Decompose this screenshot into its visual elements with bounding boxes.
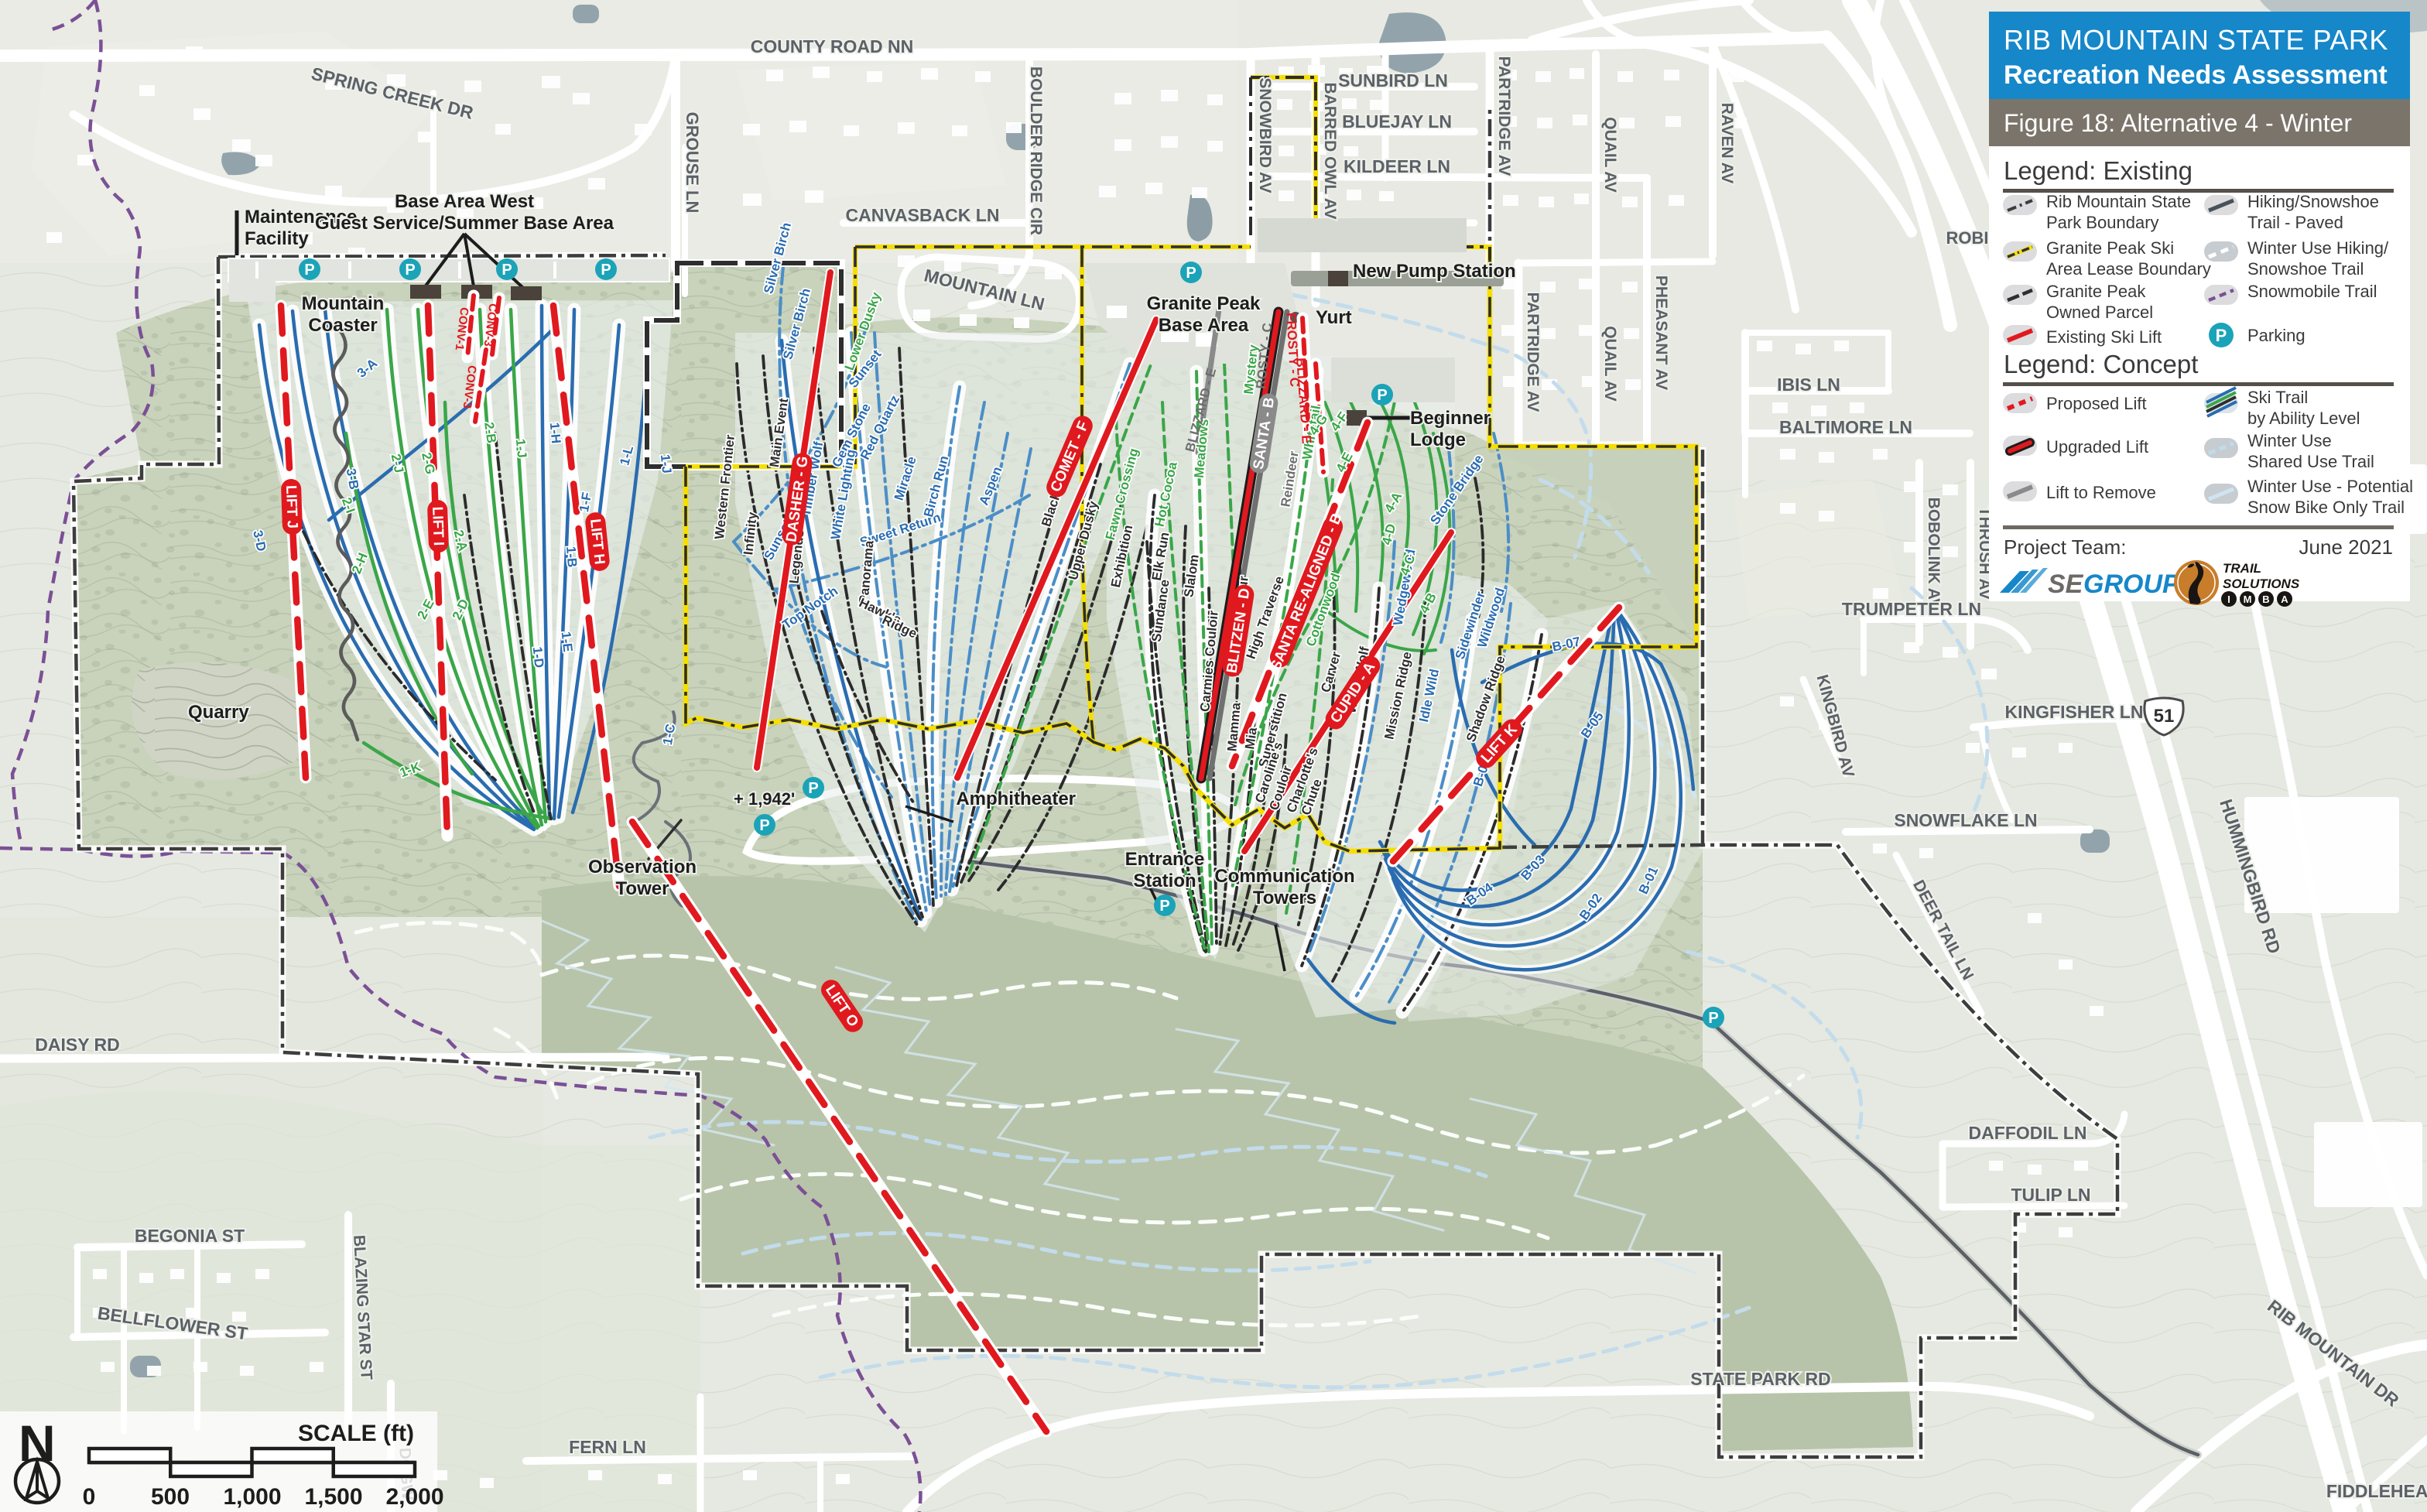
- svg-text:1,500: 1,500: [304, 1484, 362, 1510]
- svg-text:P: P: [405, 262, 415, 279]
- svg-text:BLUEJAY LN: BLUEJAY LN: [1342, 111, 1452, 132]
- svg-text:Granite Peak Ski: Granite Peak Ski: [2046, 238, 2174, 258]
- svg-text:Legend: Concept: Legend: Concept: [2004, 350, 2198, 378]
- svg-text:Proposed Lift: Proposed Lift: [2046, 394, 2147, 413]
- svg-text:P: P: [1708, 1010, 1718, 1027]
- svg-text:Base Area: Base Area: [1159, 315, 1249, 336]
- svg-text:BARRED OWL AV: BARRED OWL AV: [1321, 83, 1339, 220]
- svg-text:BOULDER RIDGE CIR: BOULDER RIDGE CIR: [1027, 67, 1045, 235]
- svg-text:Lift to Remove: Lift to Remove: [2046, 483, 2156, 502]
- svg-text:1-H: 1-H: [547, 422, 563, 444]
- svg-text:FIDDLEHEAD: FIDDLEHEAD: [2326, 1481, 2427, 1501]
- svg-text:Station: Station: [1133, 871, 1196, 891]
- svg-text:Towers: Towers: [1253, 888, 1316, 908]
- svg-text:Mia: Mia: [1242, 726, 1260, 750]
- svg-text:Observation: Observation: [588, 857, 697, 877]
- svg-text:I: I: [2227, 594, 2230, 605]
- svg-text:51: 51: [2154, 706, 2175, 727]
- svg-text:Snowmobile Trail: Snowmobile Trail: [2247, 282, 2377, 301]
- svg-text:Recreation Needs Assessment: Recreation Needs Assessment: [2004, 60, 2388, 90]
- svg-text:Shared Use Trail: Shared Use Trail: [2247, 452, 2374, 471]
- svg-text:500: 500: [151, 1484, 190, 1510]
- svg-text:Winter Use: Winter Use: [2247, 431, 2332, 450]
- svg-text:Communication: Communication: [1214, 866, 1354, 887]
- svg-text:Existing Ski Lift: Existing Ski Lift: [2046, 327, 2162, 347]
- svg-text:P: P: [759, 817, 769, 834]
- svg-text:P: P: [2216, 326, 2227, 345]
- svg-text:Owned Parcel: Owned Parcel: [2046, 303, 2153, 322]
- svg-text:BALTIMORE LN: BALTIMORE LN: [1779, 417, 1912, 437]
- svg-text:Hiking/Snowshoe: Hiking/Snowshoe: [2247, 192, 2379, 211]
- svg-text:RIB MOUNTAIN STATE PARK: RIB MOUNTAIN STATE PARK: [2004, 24, 2388, 56]
- svg-text:P: P: [601, 262, 611, 279]
- svg-text:Rib Mountain State: Rib Mountain State: [2046, 192, 2191, 211]
- svg-text:GROUSE LN: GROUSE LN: [683, 112, 702, 214]
- svg-text:by Ability Level: by Ability Level: [2247, 409, 2360, 428]
- svg-text:Yurt: Yurt: [1316, 307, 1352, 328]
- svg-text:1-E: 1-E: [559, 631, 576, 652]
- svg-text:Granite Peak: Granite Peak: [1147, 293, 1261, 314]
- svg-text:A: A: [2281, 594, 2288, 605]
- svg-text:Granite Peak: Granite Peak: [2046, 282, 2146, 301]
- svg-text:Beginner: Beginner: [1410, 408, 1491, 429]
- svg-text:P: P: [501, 262, 512, 279]
- svg-text:RAVEN AV: RAVEN AV: [1718, 103, 1736, 184]
- svg-text:2,000: 2,000: [385, 1484, 443, 1510]
- svg-text:Snowshoe Trail: Snowshoe Trail: [2247, 259, 2364, 279]
- svg-text:Facility: Facility: [245, 228, 309, 249]
- svg-text:TULIP LN: TULIP LN: [2011, 1185, 2090, 1205]
- svg-text:Winter Use Hiking/: Winter Use Hiking/: [2247, 238, 2389, 258]
- svg-text:P: P: [1377, 387, 1387, 404]
- svg-text:Figure 18: Alternative 4 - Win: Figure 18: Alternative 4 - Winter: [2004, 109, 2352, 137]
- svg-text:Lodge: Lodge: [1410, 429, 1466, 450]
- svg-text:BOBOLINK AV: BOBOLINK AV: [1925, 498, 1943, 610]
- svg-text:2-B: 2-B: [481, 421, 499, 444]
- svg-text:SNOWBIRD AV: SNOWBIRD AV: [1256, 77, 1274, 193]
- svg-text:Mountain: Mountain: [302, 293, 385, 314]
- svg-text:BEGONIA ST: BEGONIA ST: [135, 1226, 245, 1246]
- svg-text:M: M: [2244, 594, 2252, 605]
- svg-text:COUNTY ROAD NN: COUNTY ROAD NN: [751, 36, 913, 56]
- svg-text:DAISY RD: DAISY RD: [35, 1035, 120, 1055]
- svg-text:TRAIL: TRAIL: [2223, 561, 2261, 576]
- svg-text:+ 1,942': + 1,942': [734, 789, 795, 809]
- svg-text:New Pump Station: New Pump Station: [1353, 261, 1516, 282]
- svg-text:Parking: Parking: [2247, 326, 2305, 345]
- svg-text:1-B: 1-B: [563, 546, 580, 568]
- svg-text:Amphitheater: Amphitheater: [956, 788, 1076, 809]
- svg-text:1-D: 1-D: [530, 646, 547, 669]
- svg-text:P: P: [1186, 265, 1196, 282]
- svg-text:Park Boundary: Park Boundary: [2046, 213, 2159, 232]
- svg-text:Guest Service/Summer Base Area: Guest Service/Summer Base Area: [315, 213, 614, 234]
- svg-text:Base Area West: Base Area West: [395, 191, 534, 212]
- svg-text:LIFT J: LIFT J: [282, 485, 300, 529]
- svg-text:Ski Trail: Ski Trail: [2247, 388, 2308, 407]
- svg-text:PARTRIDGE AV: PARTRIDGE AV: [1524, 292, 1542, 412]
- svg-text:Winter Use - Potential: Winter Use - Potential: [2247, 477, 2413, 496]
- svg-text:SCALE (ft): SCALE (ft): [298, 1421, 414, 1446]
- svg-text:Entrance: Entrance: [1125, 849, 1205, 870]
- svg-text:GROUP: GROUP: [2083, 570, 2180, 599]
- svg-text:Coaster: Coaster: [308, 315, 377, 336]
- svg-text:FERN LN: FERN LN: [569, 1437, 646, 1457]
- svg-text:B: B: [2262, 594, 2269, 605]
- svg-text:LIFT I: LIFT I: [429, 506, 447, 546]
- svg-text:June 2021: June 2021: [2299, 535, 2393, 559]
- svg-text:P: P: [1159, 898, 1169, 915]
- svg-text:PHEASANT AV: PHEASANT AV: [1652, 275, 1670, 390]
- svg-text:0: 0: [83, 1484, 96, 1510]
- svg-text:KINGFISHER LN: KINGFISHER LN: [2005, 702, 2144, 722]
- svg-text:QUAIL AV: QUAIL AV: [1601, 326, 1619, 402]
- svg-text:SUNBIRD LN: SUNBIRD LN: [1338, 70, 1448, 91]
- svg-text:SNOWFLAKE LN: SNOWFLAKE LN: [1894, 810, 2037, 830]
- svg-text:TRUMPETER LN: TRUMPETER LN: [1842, 599, 1981, 619]
- svg-text:DAFFODIL LN: DAFFODIL LN: [1969, 1123, 2087, 1143]
- svg-text:Trail - Paved: Trail - Paved: [2247, 213, 2343, 232]
- svg-text:Project Team:: Project Team:: [2004, 535, 2126, 559]
- svg-text:Legend: Existing: Legend: Existing: [2004, 156, 2193, 185]
- svg-text:1-J: 1-J: [513, 438, 529, 458]
- svg-text:SOLUTIONS: SOLUTIONS: [2223, 576, 2300, 591]
- svg-text:QUAIL AV: QUAIL AV: [1601, 117, 1619, 193]
- svg-text:SE: SE: [2048, 570, 2084, 599]
- svg-text:1-J: 1-J: [658, 453, 674, 474]
- svg-text:Tower: Tower: [616, 878, 669, 899]
- svg-text:KILDEER LN: KILDEER LN: [1344, 156, 1450, 176]
- svg-text:Area Lease Boundary: Area Lease Boundary: [2046, 259, 2211, 279]
- svg-text:P: P: [808, 780, 818, 797]
- svg-text:PARTRIDGE AV: PARTRIDGE AV: [1495, 56, 1513, 176]
- svg-text:Upgraded Lift: Upgraded Lift: [2046, 437, 2148, 457]
- svg-text:STATE PARK RD: STATE PARK RD: [1690, 1369, 1830, 1389]
- svg-text:IBIS LN: IBIS LN: [1777, 375, 1840, 395]
- svg-text:Snow Bike Only Trail: Snow Bike Only Trail: [2247, 498, 2405, 517]
- svg-text:P: P: [304, 262, 314, 279]
- svg-text:Quarry: Quarry: [188, 702, 249, 723]
- svg-text:CANVASBACK LN: CANVASBACK LN: [846, 205, 1000, 225]
- svg-text:1,000: 1,000: [223, 1484, 281, 1510]
